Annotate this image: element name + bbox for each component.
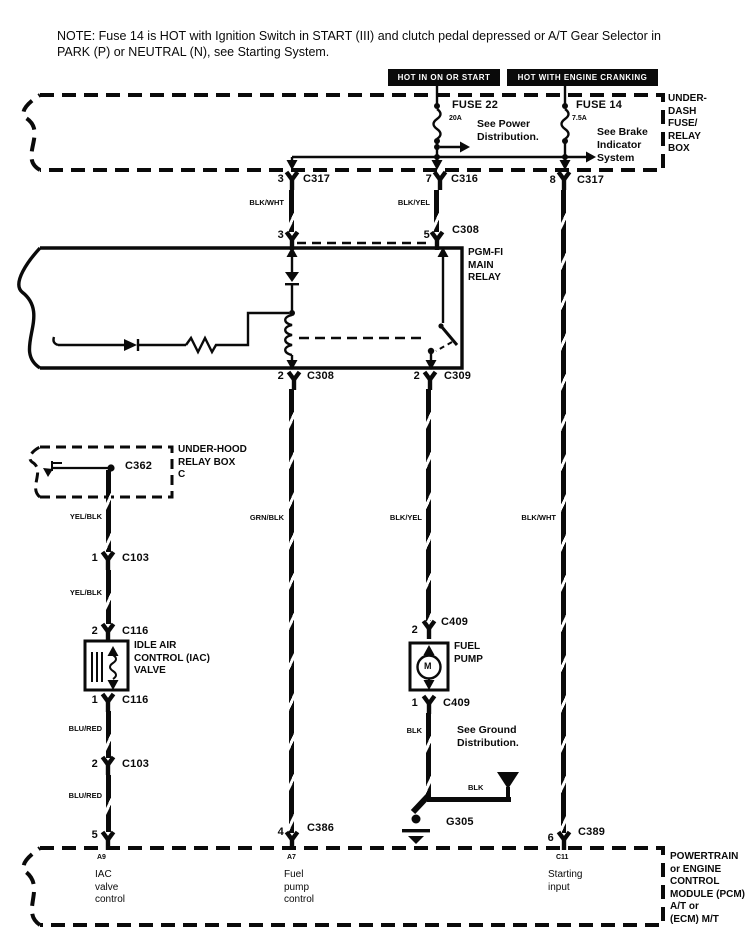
c362-label: C362 [125, 460, 152, 473]
wire-blk-horizontal [427, 797, 511, 802]
wire-label-blk-2: BLK [468, 784, 483, 793]
c308-pin2-number: 2 [262, 370, 284, 383]
c116-pin2-number: 2 [78, 625, 98, 638]
connector-c103-pin2-icon [103, 757, 114, 775]
c116-pin1-number: 1 [78, 694, 98, 707]
wire-label-blk-yel-top: BLK/YEL [376, 199, 430, 208]
wire-grn-blk [289, 389, 294, 833]
pin7-number: 7 [410, 173, 432, 186]
iac-valve-symbol [85, 641, 128, 690]
motor-m-label: M [424, 661, 432, 672]
c103-pin2-number: 2 [78, 758, 98, 771]
wiring-diagram-page: NOTE: Fuse 14 is HOT with Ignition Switc… [0, 0, 747, 934]
c309-pin2-number: 2 [398, 370, 420, 383]
relay-pin5-number: 5 [408, 229, 430, 242]
pcm-pin-a9-id: A9 [97, 854, 106, 862]
relay-pin3-number: 3 [262, 229, 284, 242]
hot-with-engine-cranking-banner: HOT WITH ENGINE CRANKING [507, 69, 658, 86]
relay-box-outline [19, 248, 462, 368]
wire-label-blk-1: BLK [384, 727, 422, 736]
c362-terminal [43, 461, 115, 477]
c409-lower-label: C409 [443, 697, 470, 710]
fuel-pump-label: FUEL PUMP [454, 641, 483, 666]
pcm-pin-a7-id: A7 [287, 854, 296, 862]
connector-c309-pin2-icon [425, 372, 436, 390]
fuse22-name: FUSE 22 [452, 99, 498, 112]
pcm-pin-c11-id: C11 [556, 854, 568, 862]
wire-blk-yel-top [434, 190, 439, 232]
pcm-pin-a7-desc: Fuel pump control [284, 869, 314, 907]
wire-blu-red-2 [106, 775, 111, 832]
wire-label-blu-red-2: BLU/RED [48, 792, 102, 801]
wire-blk-wht-top [289, 190, 294, 232]
wire-blk-wht-long [561, 190, 566, 833]
connector-c409-pin1-icon [424, 696, 435, 714]
see-brake-indicator-ref: See Brake Indicator System [597, 126, 648, 164]
wire-label-blu-red-1: BLU/RED [48, 725, 102, 734]
c386-pin4-number: 4 [262, 826, 284, 839]
connector-c103-pin1-icon [103, 552, 114, 570]
c386-label: C386 [307, 822, 334, 835]
wire-label-yel-blk-2: YEL/BLK [48, 589, 102, 598]
g305-label: G305 [446, 816, 474, 829]
connector-c316-pin7-icon [435, 172, 446, 190]
note-text: NOTE: Fuse 14 is HOT with Ignition Switc… [57, 28, 697, 60]
underdash-box-label: UNDER- DASH FUSE/ RELAY BOX [668, 93, 707, 156]
wire-yel-blk-2 [106, 570, 111, 624]
pcm-pin-a9-desc: IAC valve control [95, 869, 125, 907]
c409-pin1-number: 1 [398, 697, 418, 710]
c316-label: C316 [451, 173, 478, 186]
fuse22-rating: 20A [449, 115, 462, 123]
connector-c116-pin1-icon [103, 694, 114, 712]
pgm-fi-relay-label: PGM-FI MAIN RELAY [468, 247, 503, 285]
pcm-pin5-number: 5 [78, 829, 98, 842]
ground-distribution-tap [497, 772, 519, 799]
underhood-box-label: UNDER-HOOD RELAY BOX C [178, 444, 247, 482]
c116-upper-label: C116 [122, 625, 149, 638]
c409-upper-label: C409 [441, 616, 468, 629]
g305-ground-icon [402, 815, 430, 845]
pin3-number: 3 [262, 173, 284, 186]
c309-label: C309 [444, 370, 471, 383]
c103-upper-label: C103 [122, 552, 149, 565]
fuse14-rating: 7.5A [572, 115, 587, 123]
connector-c116-pin2-icon [103, 624, 114, 642]
c409-pin2-number: 2 [398, 624, 418, 637]
c308-bottom-label: C308 [307, 370, 334, 383]
pcm-pin-c11-desc: Starting input [548, 869, 582, 894]
wire-label-blk-yel-mid: BLK/YEL [368, 514, 422, 523]
see-ground-distribution-ref: See Ground Distribution. [457, 724, 519, 750]
hot-in-on-or-start-banner: HOT IN ON OR START [388, 69, 500, 86]
see-power-distribution-ref: See Power Distribution. [477, 118, 539, 144]
wire-label-grn-blk: GRN/BLK [230, 514, 284, 523]
pin8-number: 8 [534, 174, 556, 187]
c116-lower-label: C116 [122, 694, 149, 707]
c317-right-label: C317 [577, 174, 604, 187]
wire-label-blk-wht-top: BLK/WHT [230, 199, 284, 208]
connector-c317-pin8-icon [559, 172, 570, 190]
iac-valve-label: IDLE AIR CONTROL (IAC) VALVE [134, 640, 210, 678]
pcm-box-label: POWERTRAIN or ENGINE CONTROL MODULE (PCM… [670, 851, 746, 927]
connector-c409-pin2-icon [424, 621, 435, 639]
c389-label: C389 [578, 826, 605, 839]
relay-internals [54, 255, 458, 360]
connector-c317-pin3-icon [287, 172, 298, 190]
c389-pin6-number: 6 [534, 832, 554, 845]
c103-pin1-number: 1 [78, 552, 98, 565]
wire-blk-ground [426, 713, 431, 797]
connector-c389-pin6-icon [559, 832, 570, 850]
wire-yel-blk-1 [106, 470, 111, 552]
c308-top-label: C308 [452, 224, 479, 237]
wire-blu-red-1 [106, 711, 111, 758]
wire-blk-yel-mid [426, 389, 431, 621]
wire-label-yel-blk-1: YEL/BLK [48, 513, 102, 522]
c317-left-label: C317 [303, 173, 330, 186]
connector-c308-pin2-icon [289, 372, 300, 390]
fuse14-name: FUSE 14 [576, 99, 622, 112]
c103-lower-label: C103 [122, 758, 149, 771]
wire-label-blk-wht-long: BLK/WHT [502, 514, 556, 523]
